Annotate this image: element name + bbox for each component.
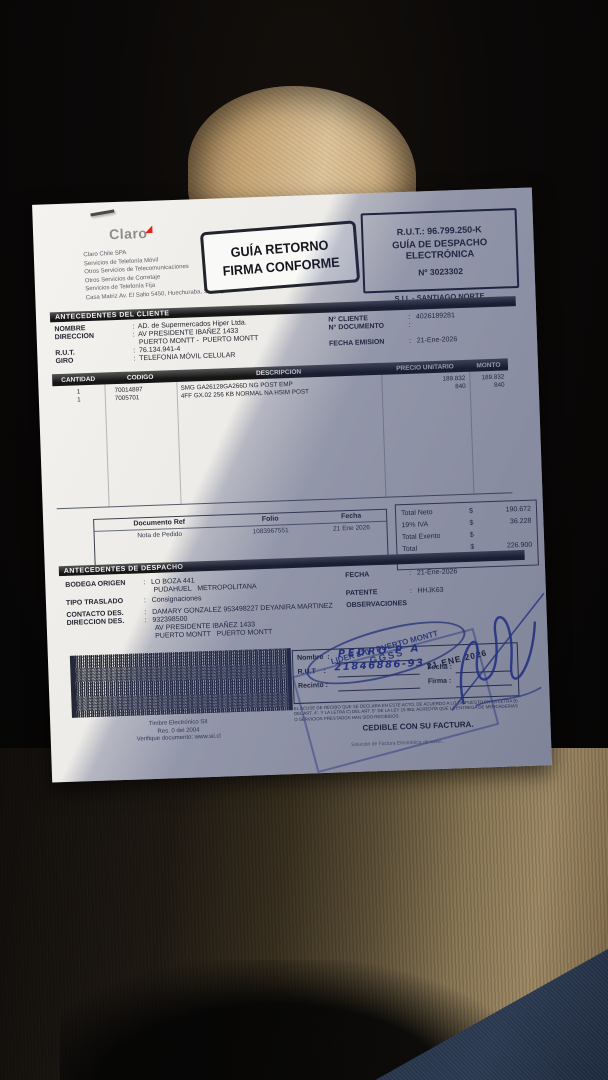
guia-retorno-stamp: GUÍA RETORNO FIRMA CONFORME	[200, 220, 360, 294]
traslado-label: TIPO TRASLADO	[66, 598, 123, 607]
col-codigo: CODIGO	[104, 372, 176, 382]
items-table-body: 1 70014897 SMG GA26128GA266D NG POST EMP…	[52, 370, 512, 509]
delivery-guide-document: Claro◢ Claro Chile SPA Servicios de Tele…	[32, 187, 552, 782]
supplier-rut: R.U.T.: 96.799.250-K	[397, 224, 482, 237]
document-number: Nº 3023302	[418, 265, 463, 277]
patente-label: PATENTE	[346, 589, 378, 597]
rut-document-box: R.U.T.: 96.799.250-K GUÍA DE DESPACHOELE…	[361, 208, 520, 293]
fecha-emision-label: FECHA EMISION	[329, 339, 385, 348]
col-precio-unitario: PRECIO UNITARIO	[381, 362, 469, 372]
client-rut-label: R.U.T.	[55, 350, 75, 358]
ndocumento-label: N° DOCUMENTO	[328, 323, 384, 332]
traslado-value: : Consignaciones	[144, 595, 202, 604]
bodega-label: BODEGA ORIGEN	[65, 580, 125, 589]
contacto-value: : DAMARY GONZALEZ 953498227 DEYANIRA MAR…	[144, 603, 333, 617]
col-cantidad: CANTIDAD	[52, 375, 104, 384]
direccion-des-label: DIRECCION DES.	[67, 618, 125, 627]
ncliente-value: : 4026189281	[408, 312, 455, 321]
fecha-emision-value: : 21-Ene-2026	[409, 336, 457, 345]
table-divider	[381, 375, 386, 497]
dispatch-fecha-label: FECHA	[345, 571, 369, 579]
client-giro-label: GIRO	[55, 358, 73, 366]
document-type: GUÍA DE DESPACHOELECTRÓNICA	[392, 237, 488, 262]
table-divider	[469, 372, 474, 494]
patente-value: : HHJK63	[410, 587, 444, 595]
logo-accent-icon: ◢	[145, 224, 153, 234]
ndocumento-value: :	[408, 322, 410, 329]
ncliente-label: N° CLIENTE	[328, 315, 368, 323]
pdf417-barcode	[70, 648, 293, 718]
client-direccion-label: DIRECCION	[55, 333, 95, 341]
observaciones-label: OBSERVACIONES	[346, 600, 407, 609]
signature-scribble	[442, 583, 556, 717]
staple-mark	[90, 209, 114, 216]
claro-logo: Claro◢	[109, 225, 155, 243]
client-nombre-label: NOMBRE	[54, 325, 85, 333]
table-divider	[104, 384, 109, 506]
timbre-electronico: Timbre Electrónico SIIRes. 0 del 2004Ver…	[72, 716, 285, 746]
table-divider	[176, 382, 181, 504]
photo-canvas: Claro◢ Claro Chile SPA Servicios de Tele…	[0, 0, 608, 1080]
col-monto: MONTO	[469, 361, 508, 369]
dispatch-fecha-value: : 21-Ene-2026	[409, 568, 457, 577]
